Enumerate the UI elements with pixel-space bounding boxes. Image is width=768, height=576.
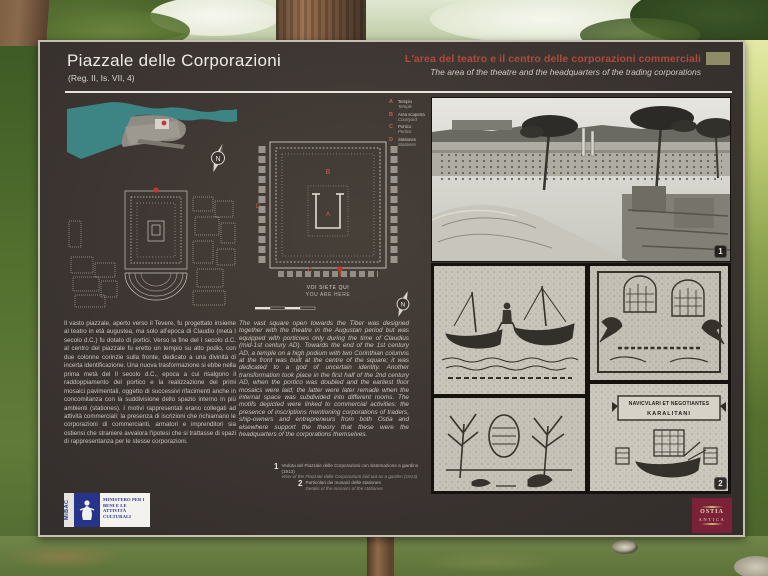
ostia-antica-logo: OSTIA ANTICA	[692, 498, 732, 533]
svg-text:N: N	[401, 302, 406, 309]
compass-icon: N	[206, 142, 230, 174]
panel-subtitle: (Reg. II, Is. VII, 4)	[68, 73, 135, 83]
svg-text:KARALITANI: KARALITANI	[647, 411, 691, 417]
dirt-patch	[420, 552, 560, 572]
sign-post	[367, 536, 394, 576]
dirt-patch	[8, 546, 118, 568]
header-divider	[65, 91, 732, 93]
ostia-ornament	[701, 523, 723, 525]
grass-edge	[744, 40, 768, 576]
body-text-italian: Il vasto piazzale, aperto verso il Tever…	[64, 320, 236, 470]
photo-number-badge: 2	[714, 477, 727, 490]
panel-title: Piazzale delle Corporazioni	[67, 51, 281, 71]
mibac-emblem-icon	[74, 493, 100, 527]
olive-color-chip	[706, 52, 730, 65]
header-right: L'area del teatro e il centro delle corp…	[370, 52, 730, 77]
site-plan-map	[67, 181, 239, 313]
mibac-ministry-text: MINISTERO PER I BENI E LE ATTIVITÀ CULTU…	[100, 493, 150, 527]
svg-text:C: C	[308, 268, 313, 274]
grass-edge	[0, 46, 40, 576]
svg-text:NAVICVLARI ET NEGOTIANTES: NAVICVLARI ET NEGOTIANTES	[629, 401, 710, 407]
ostia-ornament	[701, 506, 723, 508]
mibac-logo: MiBAC MINISTERO PER I BENI E LE ATTIVITÀ…	[64, 493, 150, 527]
photo-caption-1: 1 Veduta del Piazzale delle Corporazioni…	[274, 463, 432, 480]
svg-text:D: D	[256, 204, 261, 210]
historic-photo-art	[432, 98, 730, 261]
square-plan-map: B A C D	[252, 130, 404, 282]
information-panel: Piazzale delle Corporazioni (Reg. II, Is…	[38, 40, 745, 537]
mibac-vertical-label: MiBAC	[64, 493, 74, 527]
svg-text:B: B	[326, 169, 331, 176]
you-are-here-label: VOI SIETE QUI YOU ARE HERE	[252, 285, 404, 299]
svg-text:A: A	[326, 211, 331, 218]
you-are-here-marker	[153, 187, 158, 192]
historic-photo: 1	[432, 98, 730, 261]
mosaic-photo-art: NAVICVLARI ET NEGOTIANTES KARALITANI	[432, 264, 730, 493]
scale-bar	[254, 304, 318, 312]
header-title-english: The area of the theatre and the headquar…	[370, 67, 701, 77]
photo-number-badge: 1	[714, 245, 727, 258]
site-location-marker	[162, 121, 167, 126]
svg-text:N: N	[215, 156, 220, 163]
outdoor-scene: Piazzale delle Corporazioni (Reg. II, Is…	[0, 0, 768, 576]
mosaic-photo-grid: NAVICVLARI ET NEGOTIANTES KARALITANI 2	[432, 264, 730, 493]
body-text-english: The vast square open towards the Tiber w…	[239, 320, 409, 465]
photo-caption-2: 2 Particolari dei mosaici delle statione…	[298, 480, 432, 491]
stone	[734, 556, 768, 576]
header-title-italian: L'area del teatro e il centro delle corp…	[405, 53, 701, 65]
compass-icon: N	[392, 289, 414, 319]
stone	[612, 540, 638, 554]
